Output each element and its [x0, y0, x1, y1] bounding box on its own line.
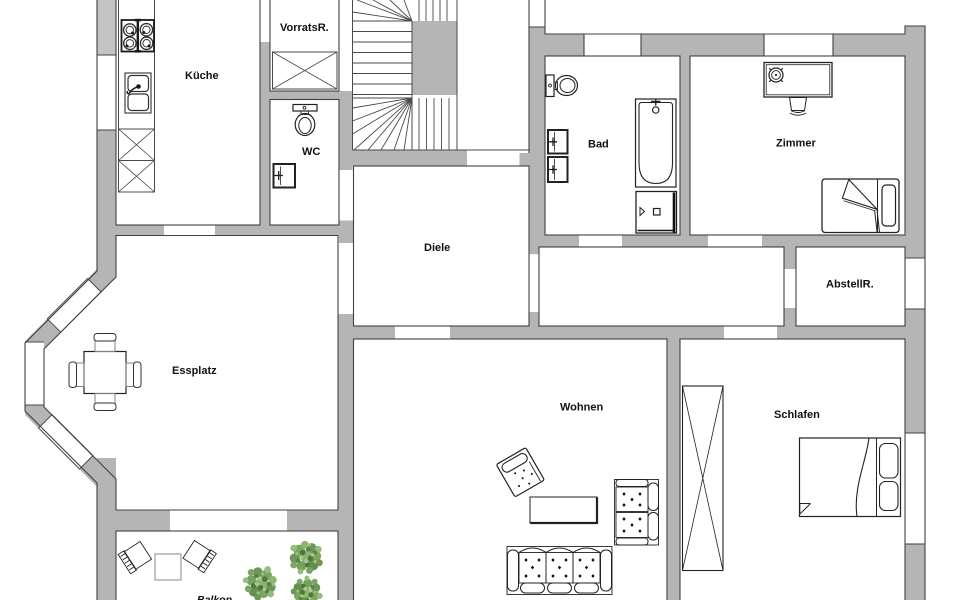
svg-text:Essplatz: Essplatz: [172, 365, 217, 377]
svg-text:VorratsR.: VorratsR.: [280, 22, 329, 34]
svg-text:WC: WC: [302, 146, 320, 158]
svg-text:Küche: Küche: [185, 70, 219, 82]
svg-text:Balkon: Balkon: [197, 594, 232, 600]
svg-text:AbstellR.: AbstellR.: [826, 279, 874, 291]
svg-text:Schlafen: Schlafen: [774, 409, 820, 421]
svg-text:Wohnen: Wohnen: [560, 402, 603, 414]
svg-text:Zimmer: Zimmer: [776, 138, 816, 150]
svg-text:Diele: Diele: [424, 242, 450, 254]
svg-text:Bad: Bad: [588, 139, 609, 151]
